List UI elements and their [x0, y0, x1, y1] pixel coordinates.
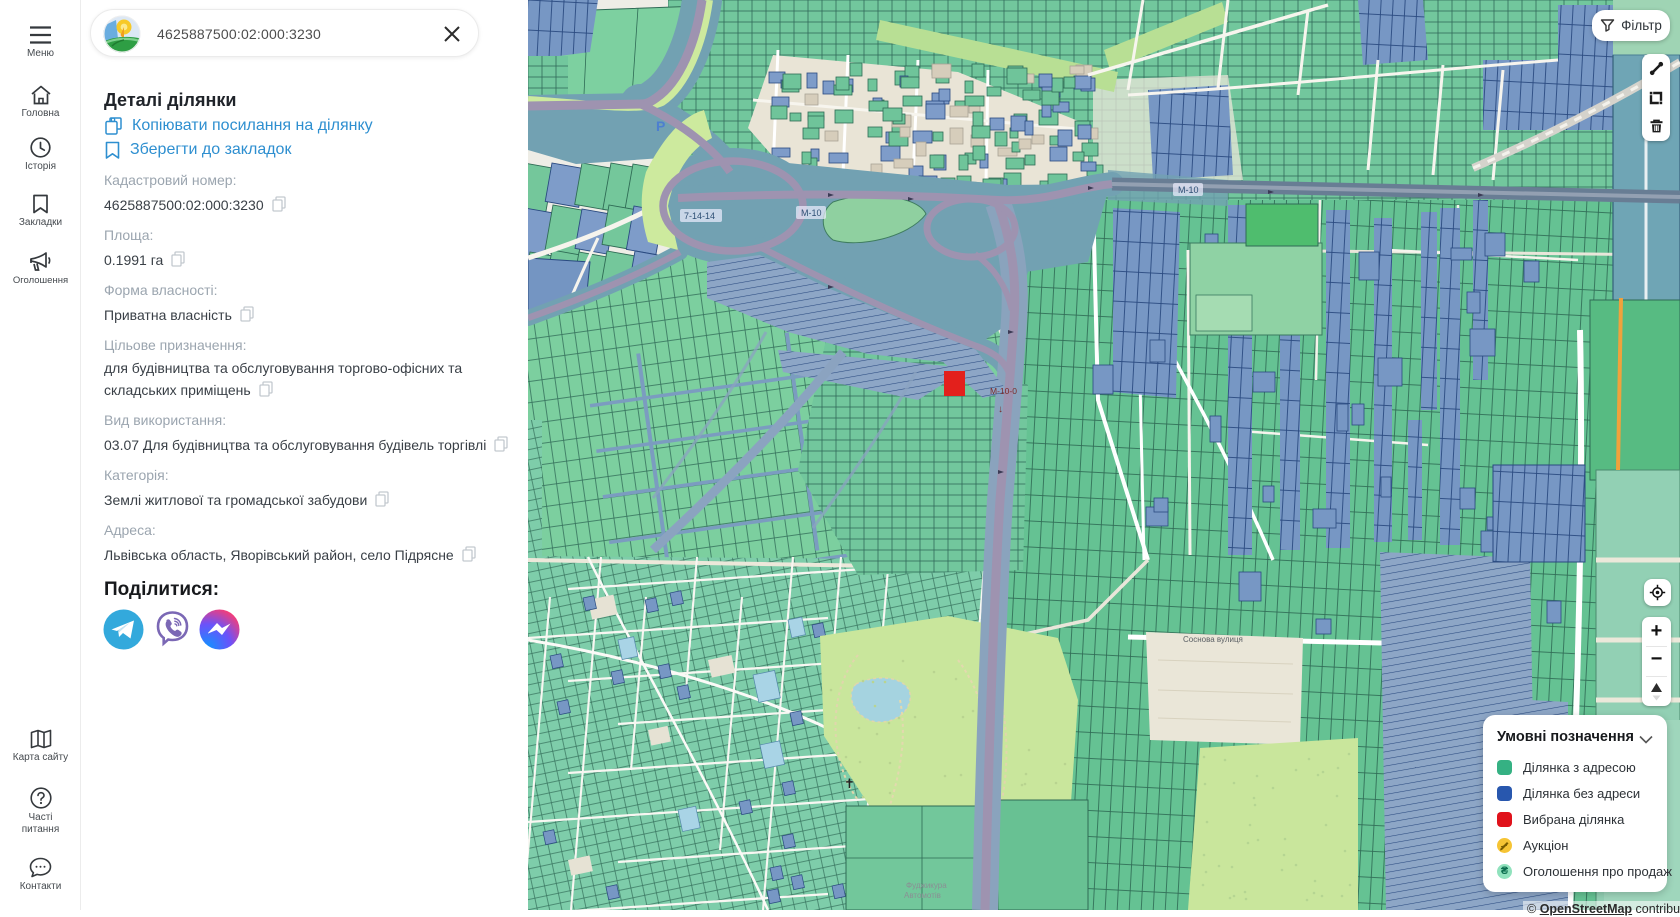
svg-text:↓: ↓ [998, 404, 1003, 415]
svg-text:Соснова вулиця: Соснова вулиця [1183, 635, 1243, 644]
svg-text:М-10: М-10 [801, 208, 822, 218]
svg-text:7-14-14: 7-14-14 [684, 211, 715, 221]
svg-text:Р: Р [656, 118, 665, 134]
svg-text:М-10: М-10 [1178, 185, 1199, 195]
svg-text:Автомотів: Автомотів [904, 891, 941, 900]
svg-text:М-10-0: М-10-0 [990, 386, 1017, 396]
svg-text:✝: ✝ [844, 776, 855, 791]
svg-text:Фуджикура: Фуджикура [906, 881, 947, 890]
